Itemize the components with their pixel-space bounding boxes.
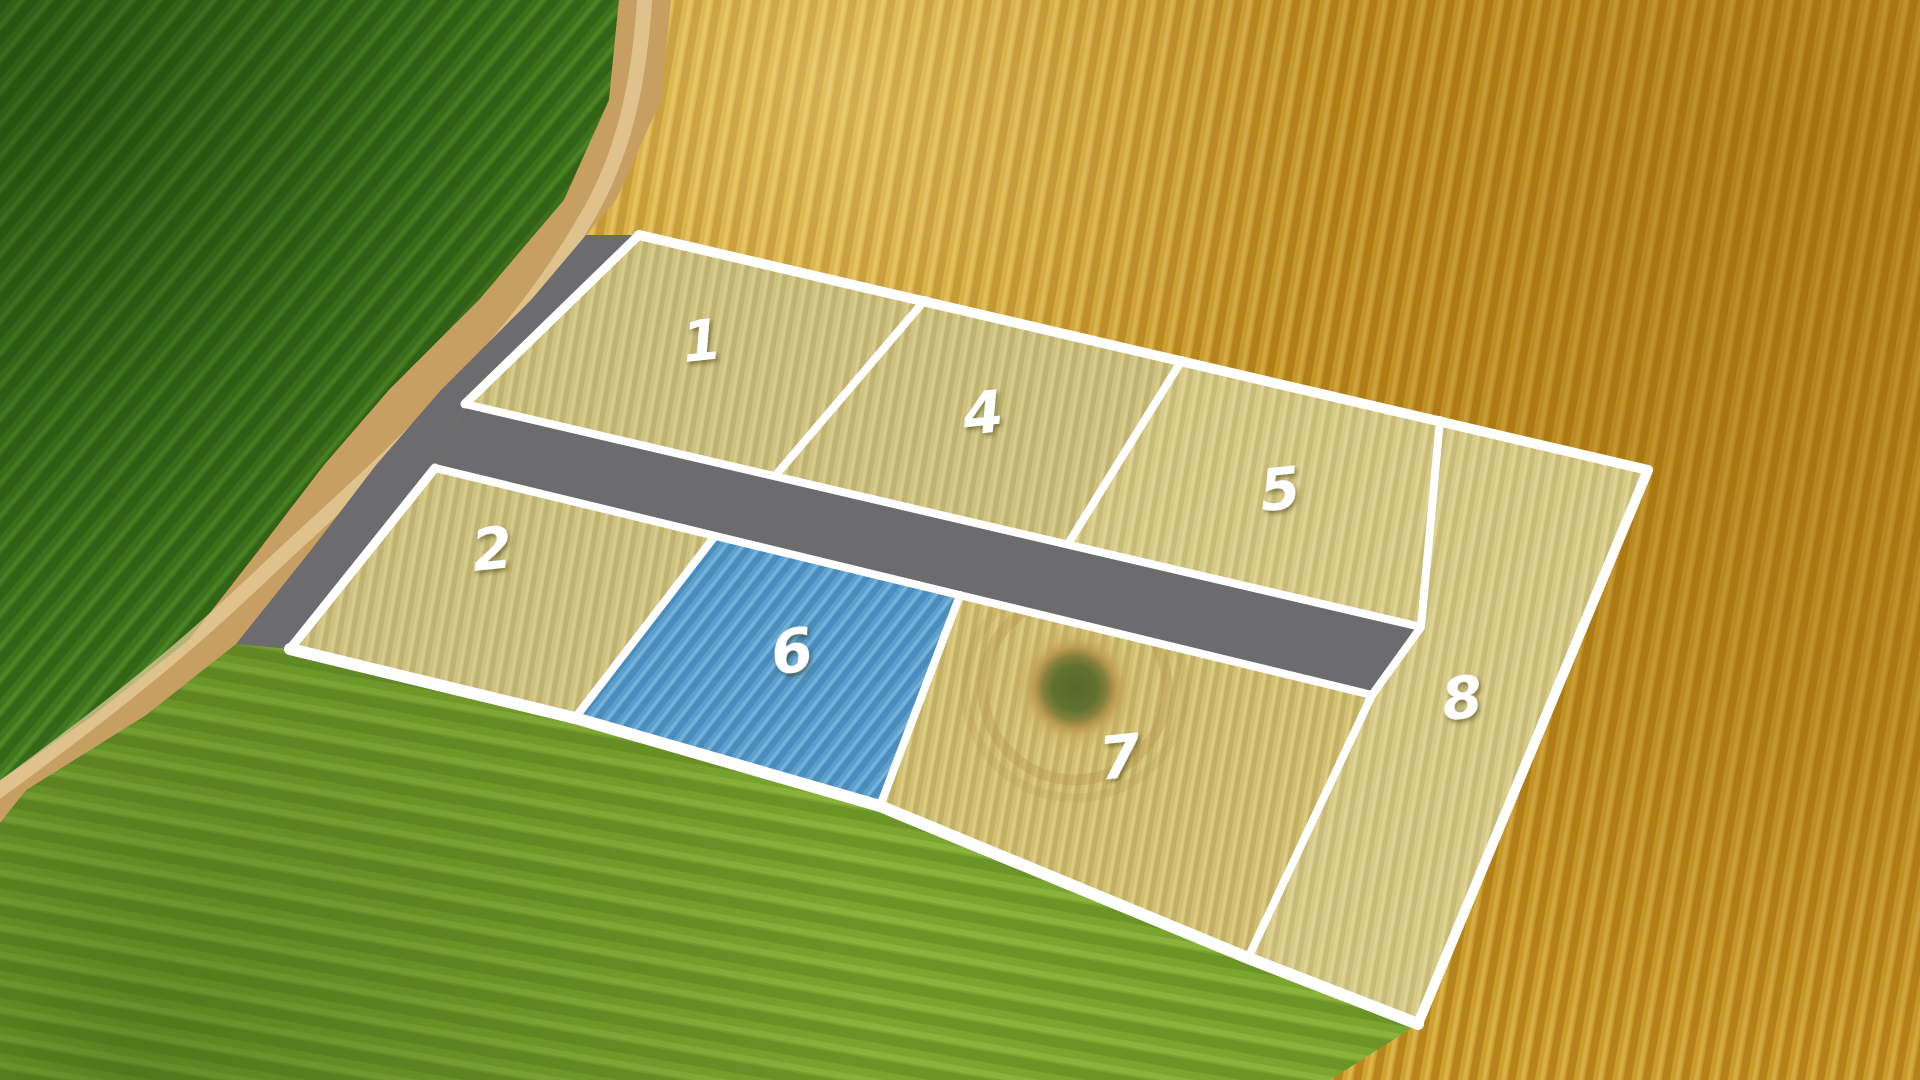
scene-svg: 1 2 4 5 6 7 8 xyxy=(0,0,1920,1080)
aerial-parcel-map: 1 2 4 5 6 7 8 xyxy=(0,0,1920,1080)
